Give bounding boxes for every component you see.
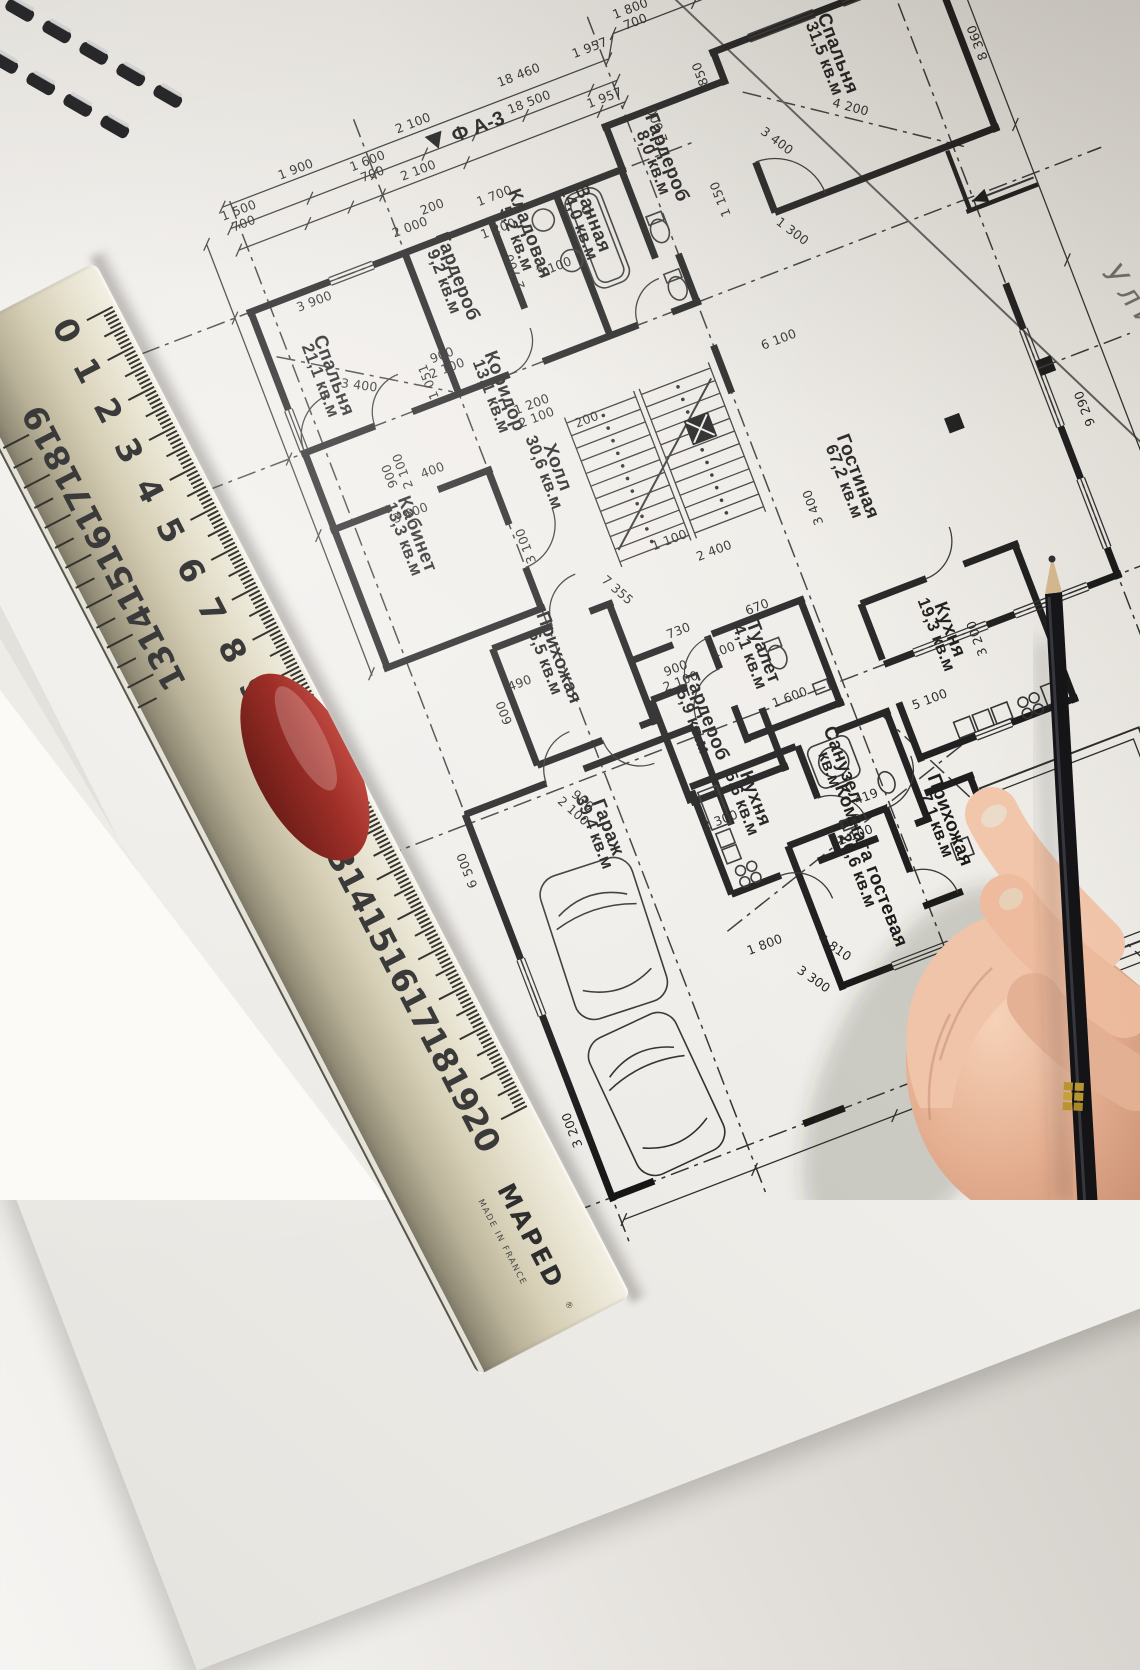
- hand-and-pencil: [0, 0, 1140, 1200]
- ruler-brand: MAPED ® MADE IN FRANCE: [475, 1179, 583, 1327]
- ruler-reg-mark: ®: [562, 1299, 576, 1313]
- pencil-graphite-tip: [1049, 556, 1056, 563]
